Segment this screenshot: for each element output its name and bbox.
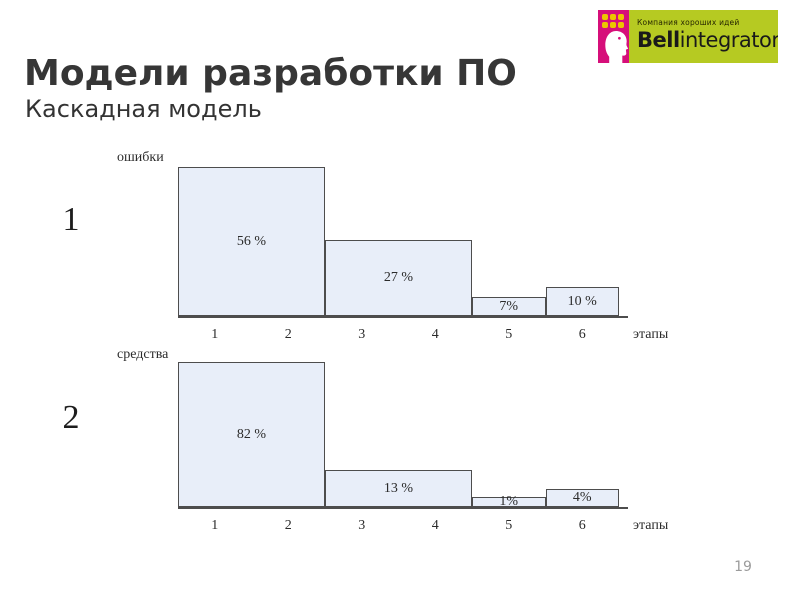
bar-value-label: 82 % [237, 427, 266, 443]
head-silhouette-icon [603, 30, 629, 63]
bar-value-label: 13 % [384, 481, 413, 497]
x-tick-label: 4 [399, 327, 473, 343]
bellintegrator-logo: Компания хороших идей Bellintegrator [598, 10, 778, 63]
bar-value-label: 1% [499, 494, 518, 510]
bar-stage-6-6: 10 % [546, 287, 620, 316]
x-tick-label: 5 [472, 518, 546, 534]
dot-icon [618, 14, 624, 20]
bar-stage-6-6: 4% [546, 489, 620, 507]
x-tick-label: 3 [325, 518, 399, 534]
page-number: 19 [726, 559, 760, 575]
x-tick-label: 3 [325, 327, 399, 343]
page-title: Модели разработки ПО [24, 52, 517, 95]
logo-brand-name: Bellintegrator [637, 28, 778, 52]
logo-brand-rest: integrator [680, 28, 778, 52]
x-tick-label: 6 [546, 518, 620, 534]
x-tick-label: 5 [472, 327, 546, 343]
x-axis-line [178, 316, 628, 318]
dot-icon [602, 14, 608, 20]
bar-value-label: 10 % [568, 294, 597, 310]
dot-icon [602, 22, 608, 28]
x-tick-label: 6 [546, 327, 620, 343]
bar-stage-5-5: 7% [472, 297, 546, 316]
x-axis-label: этапы [633, 518, 668, 534]
logo-text-block: Компания хороших идей Bellintegrator [629, 10, 778, 63]
dot-icon [610, 22, 616, 28]
x-tick-label: 1 [178, 327, 252, 343]
bar-value-label: 7% [499, 299, 518, 315]
slide-canvas: Компания хороших идей Bellintegrator Мод… [0, 0, 800, 600]
y-axis-label: ошибки [117, 150, 164, 166]
x-tick-label: 2 [252, 518, 326, 534]
logo-tagline: Компания хороших идей [637, 18, 778, 27]
bar-stage-3-4: 27 % [325, 240, 472, 316]
x-axis-label: этапы [633, 327, 668, 343]
logo-brand-bold: Bell [637, 28, 680, 52]
x-axis-line [178, 507, 628, 509]
chart-2-index-label: 2 [58, 401, 84, 435]
x-tick-label: 1 [178, 518, 252, 534]
dot-icon [610, 14, 616, 20]
x-tick-label: 4 [399, 518, 473, 534]
bar-value-label: 4% [573, 490, 592, 506]
bar-stage-5-5: 1% [472, 497, 546, 507]
bar-value-label: 27 % [384, 270, 413, 286]
logo-dots-icon [602, 14, 624, 28]
bar-stage-3-4: 13 % [325, 470, 472, 507]
bar-stage-1-2: 56 % [178, 167, 325, 316]
page-subtitle: Каскадная модель [25, 95, 262, 124]
chart-1-index-label: 1 [58, 203, 84, 237]
bar-value-label: 56 % [237, 234, 266, 250]
bar-stage-1-2: 82 % [178, 362, 325, 507]
logo-pink-panel [598, 10, 629, 63]
dot-icon [618, 22, 624, 28]
x-tick-label: 2 [252, 327, 326, 343]
y-axis-label: средства [117, 347, 168, 363]
